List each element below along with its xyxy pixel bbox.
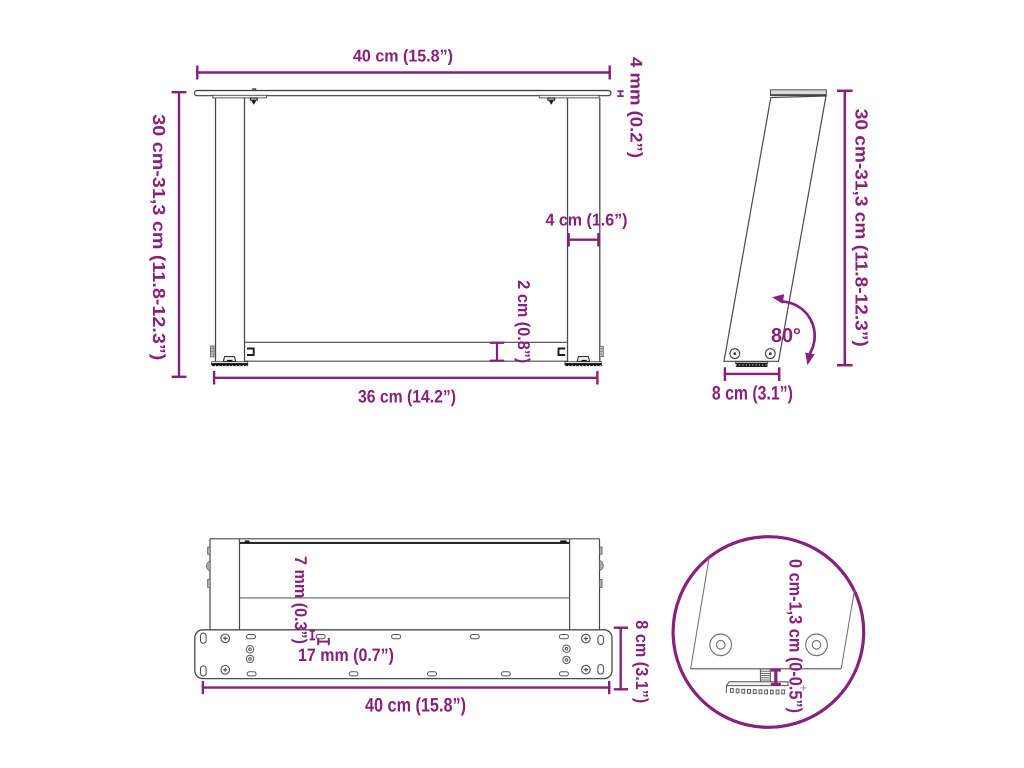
svg-text:8 cm (3.1”): 8 cm (3.1”): [632, 620, 652, 703]
svg-text:0 cm-1,3 cm (0-0.5”): 0 cm-1,3 cm (0-0.5”): [786, 559, 806, 713]
svg-text:30 cm-31,3 cm (11.8-12.3”): 30 cm-31,3 cm (11.8-12.3”): [852, 109, 872, 347]
svg-text:8 cm (3.1”): 8 cm (3.1”): [712, 383, 793, 405]
svg-text:40 cm (15.8”): 40 cm (15.8”): [365, 695, 466, 717]
svg-text:36 cm (14.2”): 36 cm (14.2”): [358, 386, 456, 406]
svg-text:17 mm (0.7”): 17 mm (0.7”): [298, 645, 394, 665]
svg-text:2 cm (0.8”): 2 cm (0.8”): [514, 280, 533, 363]
svg-text:40 cm (15.8”): 40 cm (15.8”): [353, 47, 453, 66]
svg-text:30 cm-31,3 cm (11.8-12.3”): 30 cm-31,3 cm (11.8-12.3”): [149, 114, 169, 360]
svg-text:7 mm (0.3”): 7 mm (0.3”): [291, 556, 310, 644]
svg-text:4 mm (0.2”): 4 mm (0.2”): [627, 57, 646, 158]
svg-text:4 cm (1.6”): 4 cm (1.6”): [546, 210, 628, 229]
svg-text:80°: 80°: [771, 325, 801, 347]
